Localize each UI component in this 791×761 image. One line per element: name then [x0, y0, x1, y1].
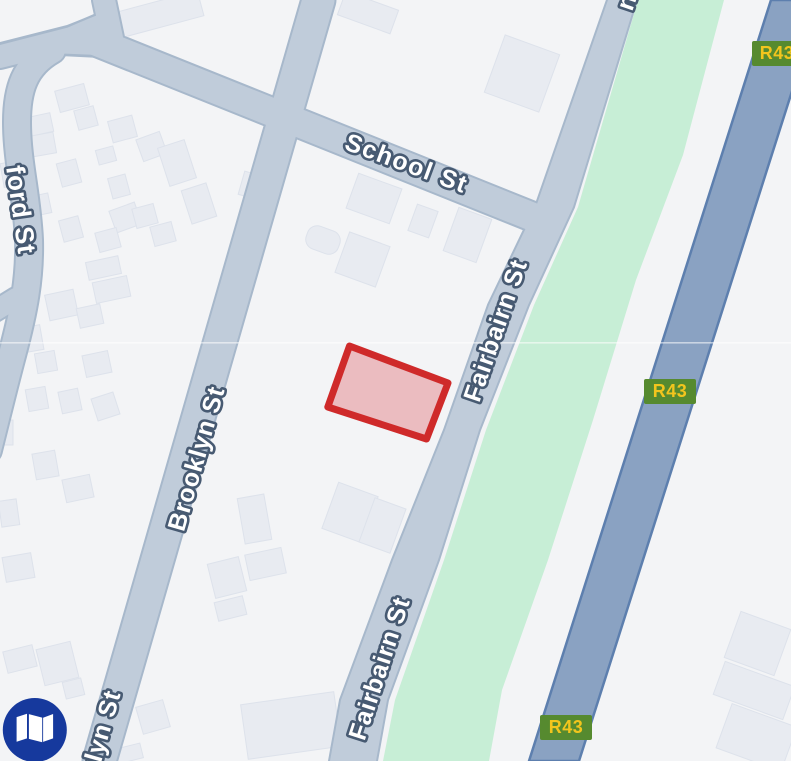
svg-text:R43: R43 [653, 381, 688, 401]
svg-text:R43: R43 [549, 717, 584, 737]
svg-text:R43: R43 [760, 43, 791, 63]
